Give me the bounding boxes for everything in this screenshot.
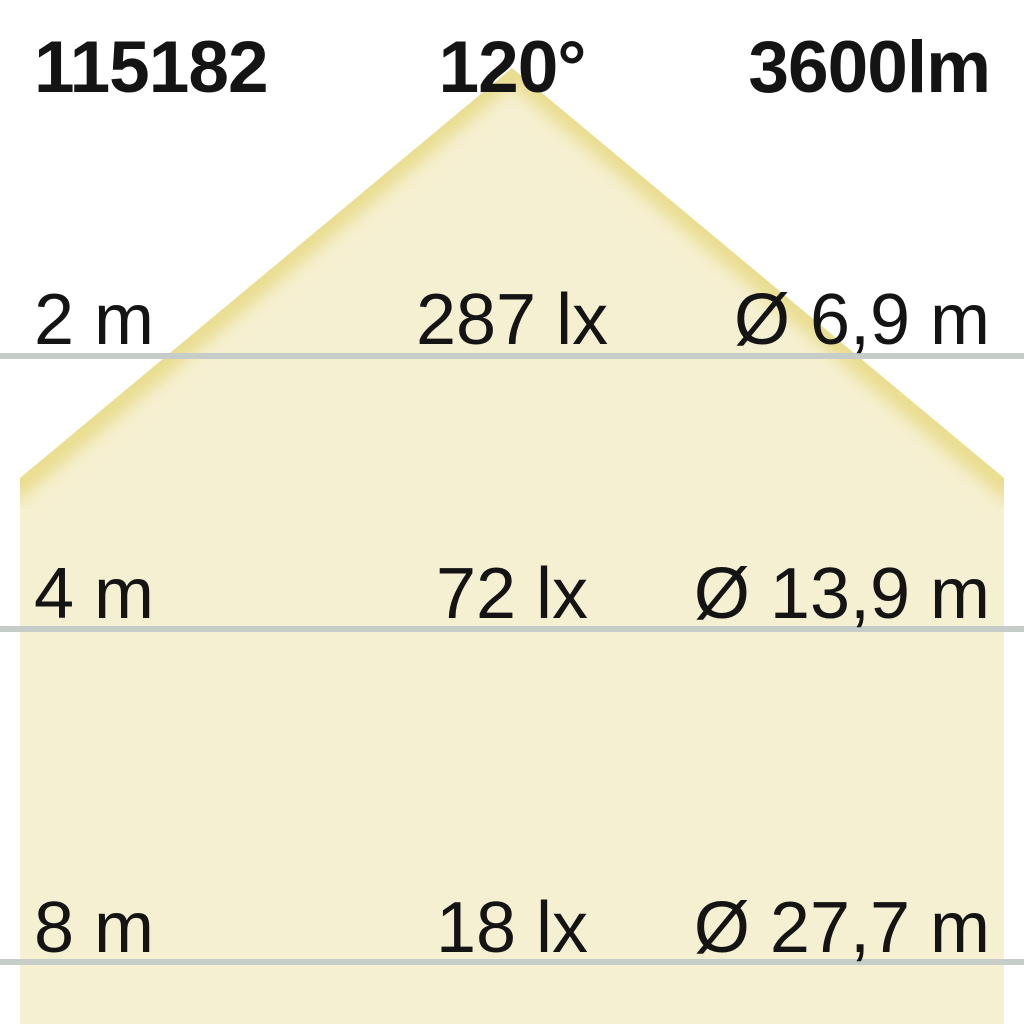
light-cone — [20, 68, 1004, 1024]
distance-label: 4 m — [34, 558, 353, 630]
distance-label: 2 m — [34, 284, 353, 356]
diameter-value: Ø 13,9 m — [671, 558, 990, 630]
distance-label: 8 m — [34, 892, 353, 964]
diameter-value: Ø 6,9 m — [671, 284, 990, 356]
light-cone-graphic — [0, 0, 1024, 1024]
header-row: 115182 120° 3600lm — [0, 31, 1024, 104]
article-number: 115182 — [34, 31, 353, 104]
luminous-flux: 3600lm — [671, 31, 990, 104]
data-row-4m: 4 m 72 lx Ø 13,9 m — [0, 558, 1024, 630]
data-row-2m: 2 m 287 lx Ø 6,9 m — [0, 284, 1024, 356]
data-row-8m: 8 m 18 lx Ø 27,7 m — [0, 892, 1024, 964]
beam-angle: 120° — [353, 31, 672, 104]
illuminance-value: 72 lx — [353, 558, 672, 630]
diameter-value: Ø 27,7 m — [671, 892, 990, 964]
light-distribution-diagram: 115182 120° 3600lm 2 m 287 lx Ø 6,9 m 4 … — [0, 0, 1024, 1024]
illuminance-value: 287 lx — [353, 284, 672, 356]
illuminance-value: 18 lx — [353, 892, 672, 964]
